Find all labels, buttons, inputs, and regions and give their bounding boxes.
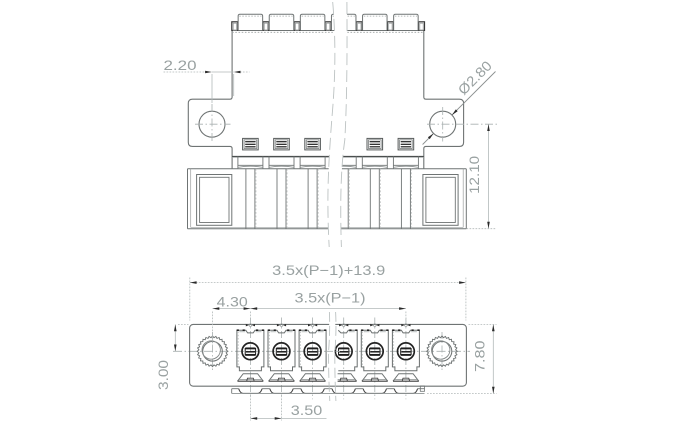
- svg-text:3.5x(P−1)+13.9: 3.5x(P−1)+13.9: [272, 262, 385, 278]
- svg-text:3.5x(P−1): 3.5x(P−1): [295, 289, 366, 305]
- svg-text:2.20: 2.20: [164, 57, 197, 73]
- svg-text:3.50: 3.50: [291, 402, 323, 418]
- svg-text:12.10: 12.10: [466, 156, 482, 194]
- svg-text:4.30: 4.30: [217, 293, 248, 309]
- svg-text:7.80: 7.80: [471, 340, 487, 372]
- svg-text:3.00: 3.00: [155, 360, 171, 390]
